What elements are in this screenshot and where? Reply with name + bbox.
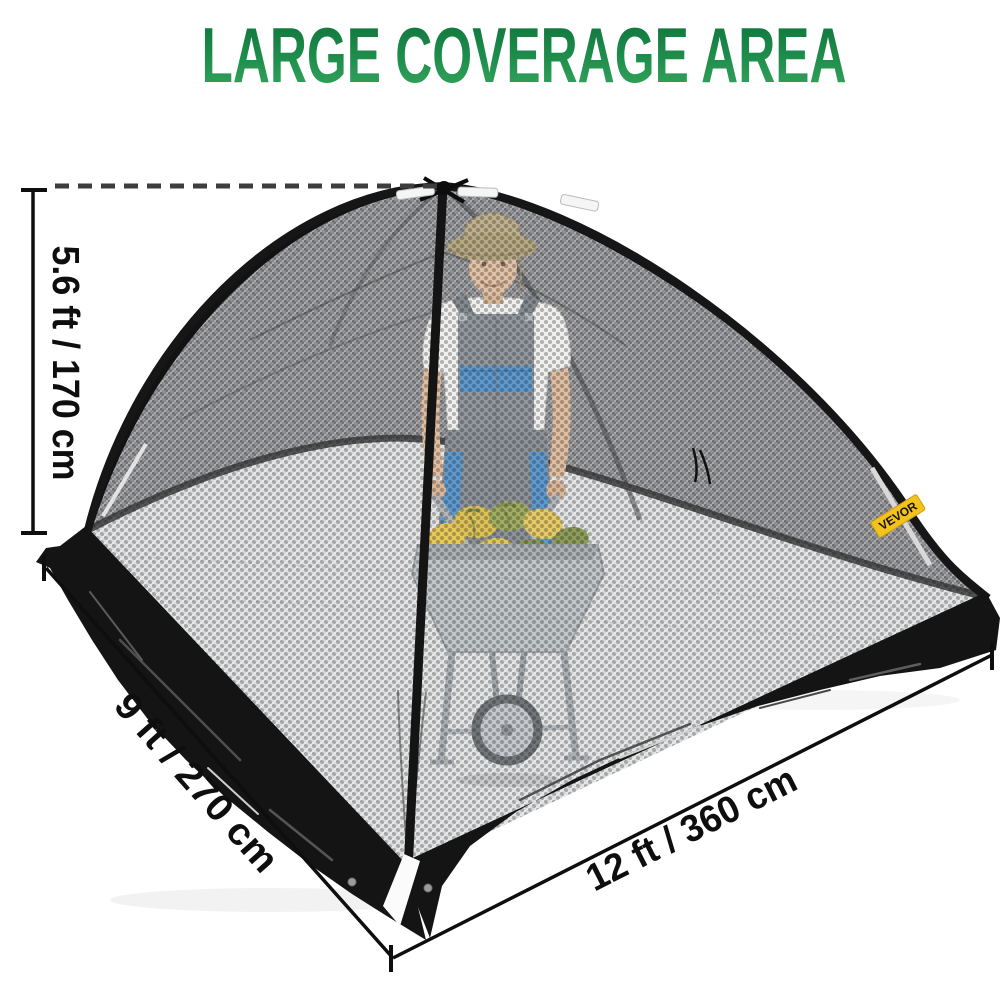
tent: VEVOR (36, 170, 1000, 940)
scene: LARGE COVERAGE AREA (0, 0, 1000, 1000)
width-label: 12 ft / 360 cm (579, 759, 803, 900)
height-label: 5.6 ft / 170 cm (44, 246, 86, 481)
skirt-grommet (348, 878, 356, 886)
skirt-grommet (424, 884, 432, 892)
page-title: LARGE COVERAGE AREA (202, 11, 847, 99)
